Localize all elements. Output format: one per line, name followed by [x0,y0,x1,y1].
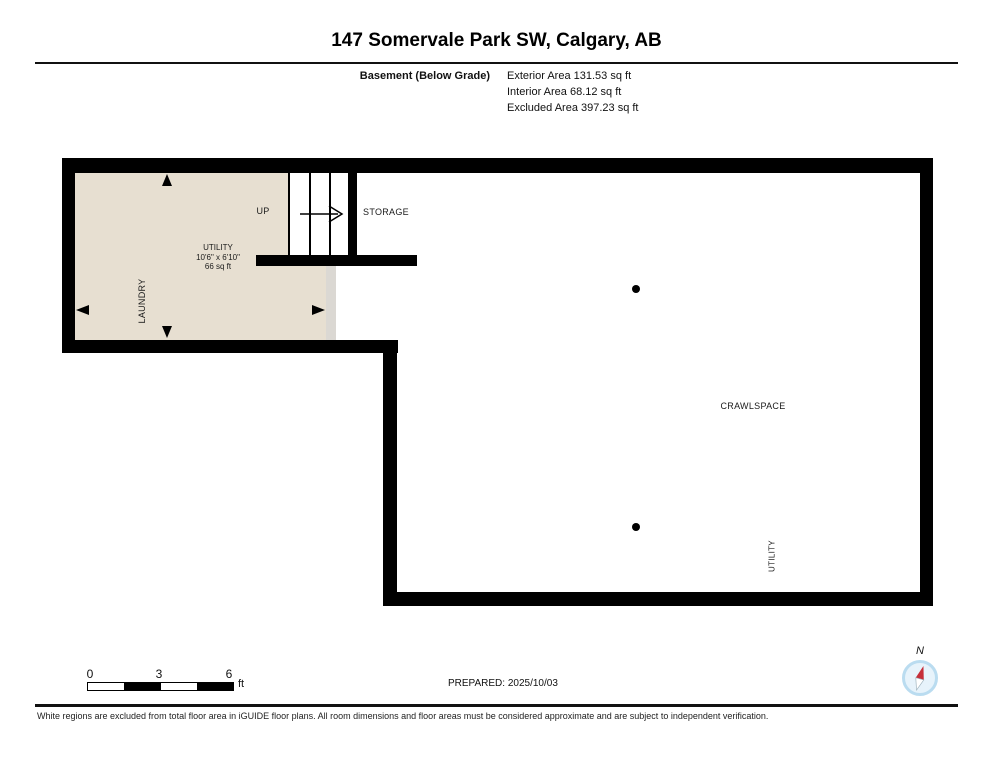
stair-up-arrow [296,203,348,225]
wall-left [62,158,75,353]
utility-right-room-label: UTILITY [768,540,777,572]
up-label: UP [256,206,269,216]
scale-segment [161,683,197,690]
footer-divider [35,704,958,707]
utility-room-dimensions: 10'6" x 6'10" [196,252,240,262]
scale-unit-label: ft [238,678,244,690]
dimension-arrow-left-icon [76,305,89,315]
wall-mid-vertical [383,340,397,606]
wall-top [62,158,933,173]
wall-right [920,158,933,606]
disclaimer-text: White regions are excluded from total fl… [37,711,967,721]
floorplan-page: 147 Somervale Park SW, Calgary, AB Basem… [0,0,993,768]
stair-edge-line [288,173,290,255]
scale-segment [124,683,160,690]
laundry-room-label: LAUNDRY [137,279,147,324]
scale-tick-3: 3 [156,667,163,681]
wall-bottom [383,592,933,606]
wall-bottom-left [62,340,398,353]
utility-room-label: UTILITY [196,243,240,253]
prepared-date: PREPARED: 2025/10/03 [448,678,558,689]
wall-opening-strip [326,266,336,340]
compass-icon [902,660,938,696]
scale-segment [88,683,124,690]
dimension-arrow-right-icon [312,305,325,315]
storage-room-label: STORAGE [363,207,409,217]
floor-plan: UP STORAGE LAUNDRY CRAWLSPACE UTILITY UT… [0,0,993,768]
scale-tick-6: 6 [226,667,233,681]
post-dot [632,523,640,531]
scale-bar [87,682,234,691]
wall-stair-right [348,173,357,266]
utility-room-area: 66 sq ft [196,262,240,272]
dimension-arrow-down-icon [162,326,172,338]
compass-north-label: N [916,645,924,657]
crawlspace-room-label: CRAWLSPACE [720,401,785,411]
wall-under-stairs [256,255,417,266]
utility-room-info: UTILITY 10'6" x 6'10" 66 sq ft [196,243,240,272]
post-dot [632,285,640,293]
scale-segment [197,683,233,690]
dimension-arrow-up-icon [162,174,172,186]
scale-tick-0: 0 [87,667,94,681]
